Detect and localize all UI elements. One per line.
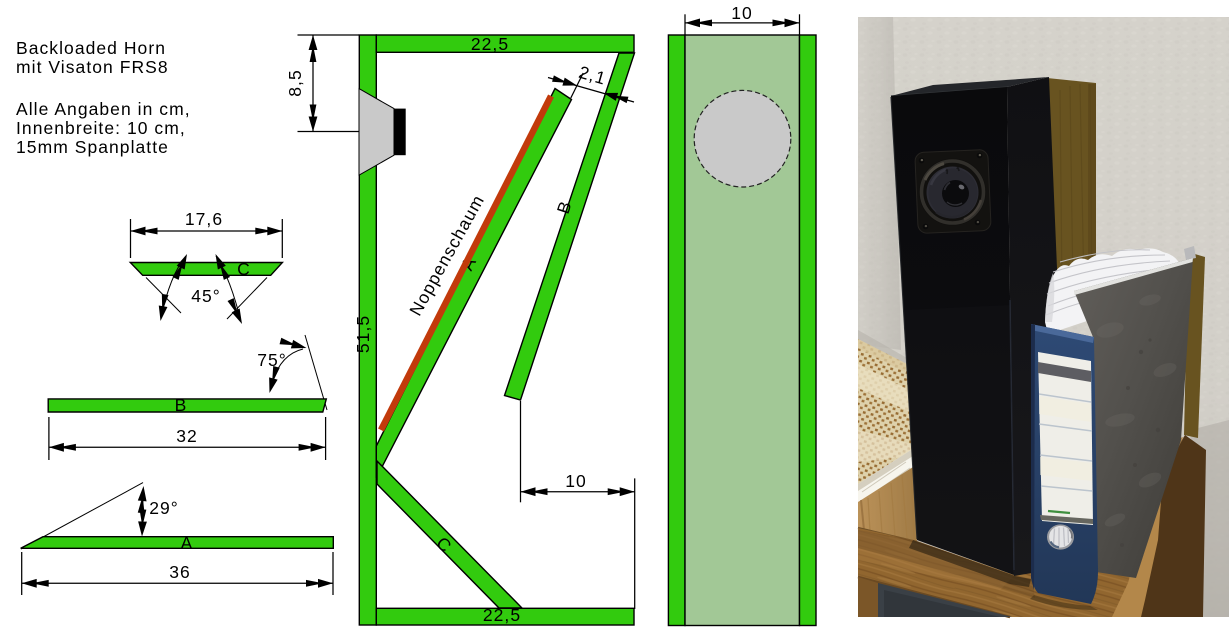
svg-text:51,5: 51,5 (353, 315, 373, 353)
svg-text:Innenbreite: 10 cm,: Innenbreite: 10 cm, (16, 118, 186, 138)
svg-text:Alle Angaben in cm,: Alle Angaben in cm, (16, 99, 191, 119)
svg-text:29°: 29° (149, 498, 179, 518)
svg-text:36: 36 (169, 562, 191, 582)
svg-text:A: A (181, 533, 194, 553)
svg-text:10: 10 (565, 471, 587, 491)
svg-text:8,5: 8,5 (285, 69, 305, 96)
svg-text:45°: 45° (191, 286, 221, 306)
svg-text:Backloaded Horn: Backloaded Horn (16, 38, 166, 58)
svg-text:75°: 75° (257, 350, 287, 370)
svg-text:32: 32 (176, 426, 198, 446)
svg-text:15mm Spanplatte: 15mm Spanplatte (16, 137, 169, 157)
svg-text:10: 10 (731, 3, 753, 23)
svg-text:C: C (237, 259, 251, 279)
svg-text:22,5: 22,5 (471, 34, 509, 54)
svg-text:17,6: 17,6 (185, 209, 223, 229)
svg-text:2,1: 2,1 (577, 62, 609, 89)
svg-text:B: B (175, 395, 188, 415)
svg-text:mit Visaton FRS8: mit Visaton FRS8 (16, 57, 169, 77)
